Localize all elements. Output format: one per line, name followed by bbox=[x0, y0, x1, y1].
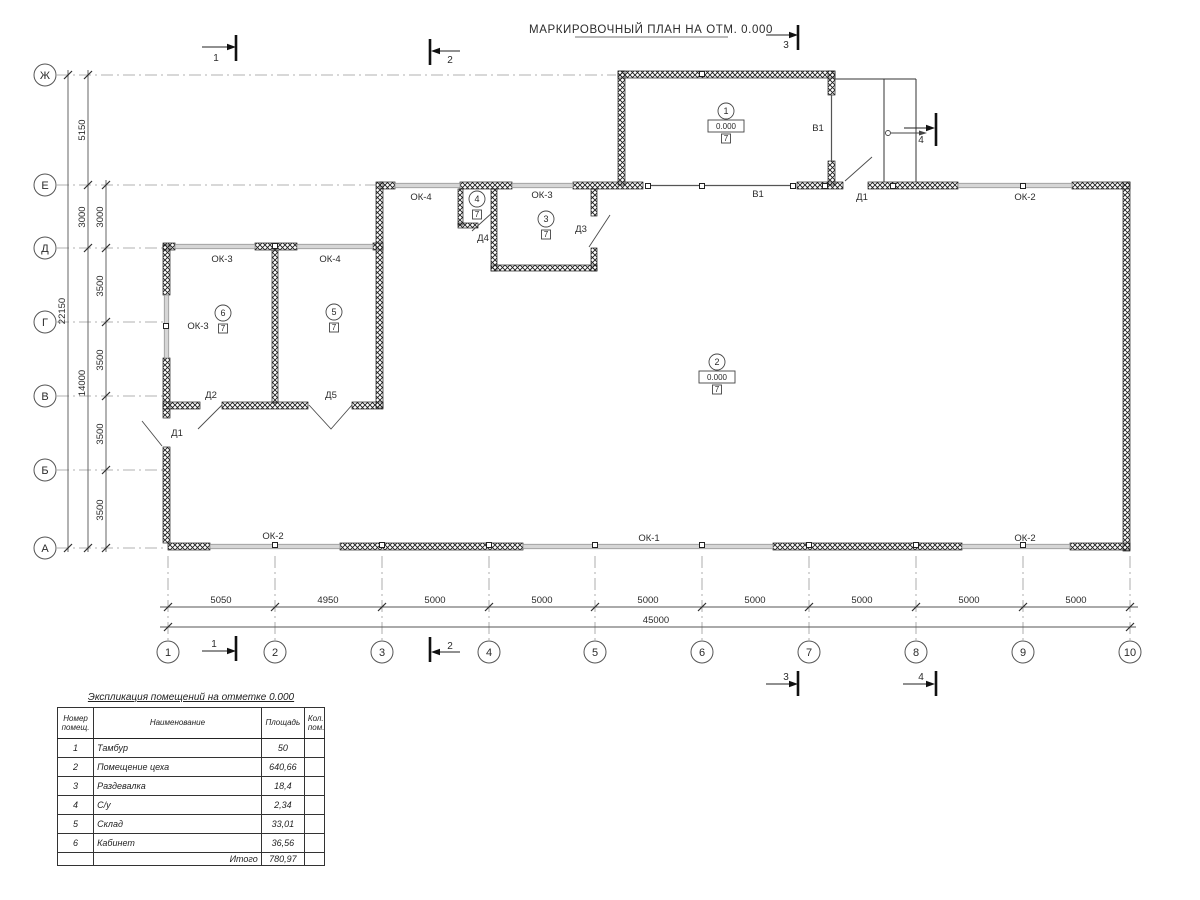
step-wall bbox=[376, 182, 383, 408]
column-square bbox=[891, 184, 896, 189]
wall-segment bbox=[163, 447, 170, 543]
cell-room-area: 18,4 bbox=[261, 777, 304, 796]
element-tag: ОК-4 bbox=[410, 192, 431, 203]
cell-room-number: 1 bbox=[58, 739, 94, 758]
window-ok2-south-east bbox=[962, 544, 1070, 549]
door-d2-swing bbox=[198, 405, 222, 429]
room-number: 6 bbox=[220, 308, 225, 318]
wall-segment bbox=[573, 182, 643, 189]
axis-col-label: 1 bbox=[165, 647, 171, 659]
column-square bbox=[807, 543, 812, 548]
element-tag: Д3 bbox=[575, 224, 587, 235]
section-marks: 12341234 bbox=[202, 25, 936, 696]
cell-room-area: 2,34 bbox=[261, 796, 304, 815]
dim-value: 14000 bbox=[77, 370, 88, 396]
element-tag: В1 bbox=[812, 123, 824, 134]
col-header-number: Номер помещ. bbox=[58, 708, 94, 739]
section-number: 3 bbox=[783, 40, 789, 51]
element-tag: Д1 bbox=[856, 192, 868, 203]
cell-room-count bbox=[304, 815, 324, 834]
cell-room-count bbox=[304, 834, 324, 853]
dim-value: 5000 bbox=[851, 595, 872, 606]
element-tag: ОК-3 bbox=[531, 190, 552, 201]
window-ok4-north bbox=[297, 244, 373, 249]
axis-col-label: 10 bbox=[1124, 647, 1136, 659]
axis-row-label: Г bbox=[42, 317, 48, 329]
axis-row-label: Б bbox=[41, 465, 48, 477]
room3-east-wall-lower bbox=[591, 248, 597, 271]
window-ok3 bbox=[512, 183, 573, 188]
column-square bbox=[700, 543, 705, 548]
column-square bbox=[273, 244, 278, 249]
cell-room-area: 640,66 bbox=[261, 758, 304, 777]
section-number: 4 bbox=[918, 672, 924, 683]
table-row: 3Раздевалка18,4 bbox=[58, 777, 325, 796]
room-number: 4 bbox=[474, 194, 479, 204]
door-d1-swing bbox=[845, 157, 872, 181]
wall-segment bbox=[1072, 182, 1130, 189]
table-row: 1Тамбур50 bbox=[58, 739, 325, 758]
column-square bbox=[593, 543, 598, 548]
element-tag: ОК-1 bbox=[638, 533, 659, 544]
cell-room-area: 36,56 bbox=[261, 834, 304, 853]
cell-room-name: Помещение цеха bbox=[94, 758, 262, 777]
dim-value: 5000 bbox=[531, 595, 552, 606]
elevation-value: 0.000 bbox=[707, 373, 728, 382]
column-square bbox=[380, 543, 385, 548]
axis-col-label: 9 bbox=[1020, 647, 1026, 659]
wall-segment bbox=[352, 402, 383, 409]
cell-room-area: 33,01 bbox=[261, 815, 304, 834]
room3-south-wall bbox=[491, 265, 597, 271]
tambour-east-wall-lower bbox=[828, 161, 835, 185]
section-number: 4 bbox=[918, 135, 924, 146]
dim-value: 4950 bbox=[317, 595, 338, 606]
window-ok4 bbox=[395, 183, 460, 188]
dim-value: 22150 bbox=[57, 298, 68, 324]
grid-axes: ЖЕДГВБА12345678910 bbox=[34, 64, 1141, 663]
column-square bbox=[700, 72, 705, 77]
column-square bbox=[791, 184, 796, 189]
column-square bbox=[164, 324, 169, 329]
cell-room-area: 50 bbox=[261, 739, 304, 758]
dim-value: 5150 bbox=[77, 119, 88, 140]
cell-empty bbox=[304, 853, 324, 866]
section-number: 1 bbox=[211, 639, 217, 650]
dim-value: 3500 bbox=[95, 499, 106, 520]
wall-segment bbox=[168, 543, 210, 550]
axis-col-label: 3 bbox=[379, 647, 385, 659]
axis-row-label: Е bbox=[41, 180, 48, 192]
floor-type-value: 7 bbox=[221, 324, 226, 333]
room-schedule-title: Экспликация помещений на отметке 0.000 bbox=[57, 692, 325, 703]
element-tag: ОК-2 bbox=[1014, 533, 1035, 544]
cell-room-count bbox=[304, 739, 324, 758]
column-square bbox=[646, 184, 651, 189]
room-number: 2 bbox=[714, 357, 719, 367]
cell-room-name: С/у bbox=[94, 796, 262, 815]
room4-west-wall bbox=[458, 189, 463, 225]
element-tag: Д5 bbox=[325, 390, 337, 401]
slope-arrow-origin bbox=[886, 131, 891, 136]
cell-room-number: 2 bbox=[58, 758, 94, 777]
col-header-name: Наименование bbox=[94, 708, 262, 739]
wall-segment bbox=[797, 182, 843, 189]
column-square bbox=[1021, 184, 1026, 189]
cell-room-number: 6 bbox=[58, 834, 94, 853]
element-tag: ОК-2 bbox=[262, 531, 283, 542]
dim-value: 45000 bbox=[643, 615, 669, 626]
dim-value: 3000 bbox=[77, 206, 88, 227]
axis-row-label: А bbox=[41, 543, 49, 555]
cell-room-name: Кабинет bbox=[94, 834, 262, 853]
wall-segment bbox=[1070, 543, 1130, 550]
dim-value: 5000 bbox=[958, 595, 979, 606]
floor-type-value: 7 bbox=[544, 230, 549, 239]
cell-room-count bbox=[304, 796, 324, 815]
room4-south-wall bbox=[458, 223, 478, 228]
wall-segment bbox=[163, 245, 170, 295]
room-schedule-table: Номер помещ. Наименование Площадь Кол. п… bbox=[57, 707, 325, 866]
dim-value: 5000 bbox=[1065, 595, 1086, 606]
floor-type-value: 7 bbox=[724, 134, 729, 143]
tambour-north-wall bbox=[618, 71, 835, 78]
section-number: 1 bbox=[213, 53, 219, 64]
column-square bbox=[487, 543, 492, 548]
wall-segment bbox=[222, 402, 308, 409]
element-tag: ОК-3 bbox=[211, 254, 232, 265]
tambour-west-wall bbox=[618, 71, 625, 185]
section-number: 2 bbox=[447, 641, 453, 652]
element-tag: В1 bbox=[752, 189, 764, 200]
dim-value: 5050 bbox=[210, 595, 231, 606]
axis-col-label: 4 bbox=[486, 647, 492, 659]
table-header-row: Номер помещ. Наименование Площадь Кол. п… bbox=[58, 708, 325, 739]
room3-east-wall-upper bbox=[591, 189, 597, 216]
section-arrow bbox=[789, 681, 798, 687]
table-row: 6Кабинет36,56 bbox=[58, 834, 325, 853]
room3-west-wall bbox=[491, 189, 497, 271]
table-row: 5Склад33,01 bbox=[58, 815, 325, 834]
dim-value: 5000 bbox=[637, 595, 658, 606]
floor-type-value: 7 bbox=[715, 385, 720, 394]
dim-value: 3500 bbox=[95, 275, 106, 296]
cell-room-number: 4 bbox=[58, 796, 94, 815]
dim-value: 3000 bbox=[95, 206, 106, 227]
room-number: 5 bbox=[331, 307, 336, 317]
axis-col-label: 5 bbox=[592, 647, 598, 659]
cell-empty bbox=[58, 853, 94, 866]
element-tag: Д4 bbox=[477, 233, 489, 244]
partition-wall bbox=[272, 250, 278, 403]
total-value: 780,97 bbox=[261, 853, 304, 866]
cell-room-name: Раздевалка bbox=[94, 777, 262, 796]
section-arrow bbox=[227, 648, 236, 654]
element-tag: ОК-4 bbox=[319, 254, 340, 265]
wall-segment bbox=[773, 543, 962, 550]
total-label: Итого bbox=[94, 853, 262, 866]
room-number: 3 bbox=[543, 214, 548, 224]
table-total-row: Итого 780,97 bbox=[58, 853, 325, 866]
floor-type-value: 7 bbox=[332, 323, 337, 332]
column-square bbox=[823, 184, 828, 189]
walls bbox=[142, 71, 1130, 551]
window-ok1-south bbox=[523, 544, 773, 549]
elevation-value: 0.000 bbox=[716, 122, 737, 131]
dim-value: 5000 bbox=[424, 595, 445, 606]
cell-room-name: Тамбур bbox=[94, 739, 262, 758]
axis-row-label: Д bbox=[41, 243, 49, 255]
axis-col-label: 6 bbox=[699, 647, 705, 659]
cell-room-number: 3 bbox=[58, 777, 94, 796]
element-tag: ОК-2 bbox=[1014, 192, 1035, 203]
column-square bbox=[273, 543, 278, 548]
element-tag: ОК-3 bbox=[187, 321, 208, 332]
cell-room-name: Склад bbox=[94, 815, 262, 834]
axis-col-label: 2 bbox=[272, 647, 278, 659]
door-d1-west-swing bbox=[142, 421, 162, 446]
dim-value: 3500 bbox=[95, 349, 106, 370]
wall-segment bbox=[163, 243, 175, 250]
room-schedule: Экспликация помещений на отметке 0.000 Н… bbox=[57, 692, 325, 866]
section-arrow bbox=[926, 681, 935, 687]
axis-col-label: 7 bbox=[806, 647, 812, 659]
column-marks bbox=[164, 72, 1026, 548]
cell-room-number: 5 bbox=[58, 815, 94, 834]
dim-value: 5000 bbox=[744, 595, 765, 606]
section-arrow bbox=[926, 125, 935, 131]
dim-value: 3500 bbox=[95, 423, 106, 444]
drawing-page: МАРКИРОВОЧНЫЙ ПЛАН НА ОТМ. 0.000 ЖЕДГВБА… bbox=[0, 0, 1200, 900]
element-tag: Д2 bbox=[205, 390, 217, 401]
wall-segment bbox=[868, 182, 958, 189]
axis-row-label: В bbox=[41, 391, 48, 403]
section-arrow bbox=[227, 44, 236, 50]
window-ok3-north bbox=[175, 244, 255, 249]
cell-room-count bbox=[304, 758, 324, 777]
door-d3-swing bbox=[589, 215, 610, 247]
door-d5-swing bbox=[309, 405, 352, 429]
wall-segment bbox=[340, 543, 523, 550]
section-arrow bbox=[431, 48, 440, 54]
axis-row-label: Ж bbox=[40, 70, 50, 82]
section-arrow bbox=[789, 32, 798, 38]
axis-col-label: 8 bbox=[913, 647, 919, 659]
section-number: 3 bbox=[783, 672, 789, 683]
tambour-east-wall-upper bbox=[828, 71, 835, 95]
element-tag: Д1 bbox=[171, 428, 183, 439]
section-number: 2 bbox=[447, 55, 453, 66]
floor-type-value: 7 bbox=[475, 210, 480, 219]
col-header-count: Кол. пом. bbox=[304, 708, 324, 739]
table-row: 2Помещение цеха640,66 bbox=[58, 758, 325, 777]
section-arrow bbox=[431, 649, 440, 655]
cell-room-count bbox=[304, 777, 324, 796]
column-square bbox=[914, 543, 919, 548]
room-number: 1 bbox=[723, 106, 728, 116]
wall-segment bbox=[163, 402, 200, 409]
table-row: 4С/у2,34 bbox=[58, 796, 325, 815]
column-square bbox=[700, 184, 705, 189]
page-title: МАРКИРОВОЧНЫЙ ПЛАН НА ОТМ. 0.000 bbox=[529, 23, 773, 36]
wall-segment bbox=[460, 182, 512, 189]
window-ok2 bbox=[958, 183, 1072, 188]
east-wall bbox=[1123, 182, 1130, 551]
col-header-area: Площадь bbox=[261, 708, 304, 739]
